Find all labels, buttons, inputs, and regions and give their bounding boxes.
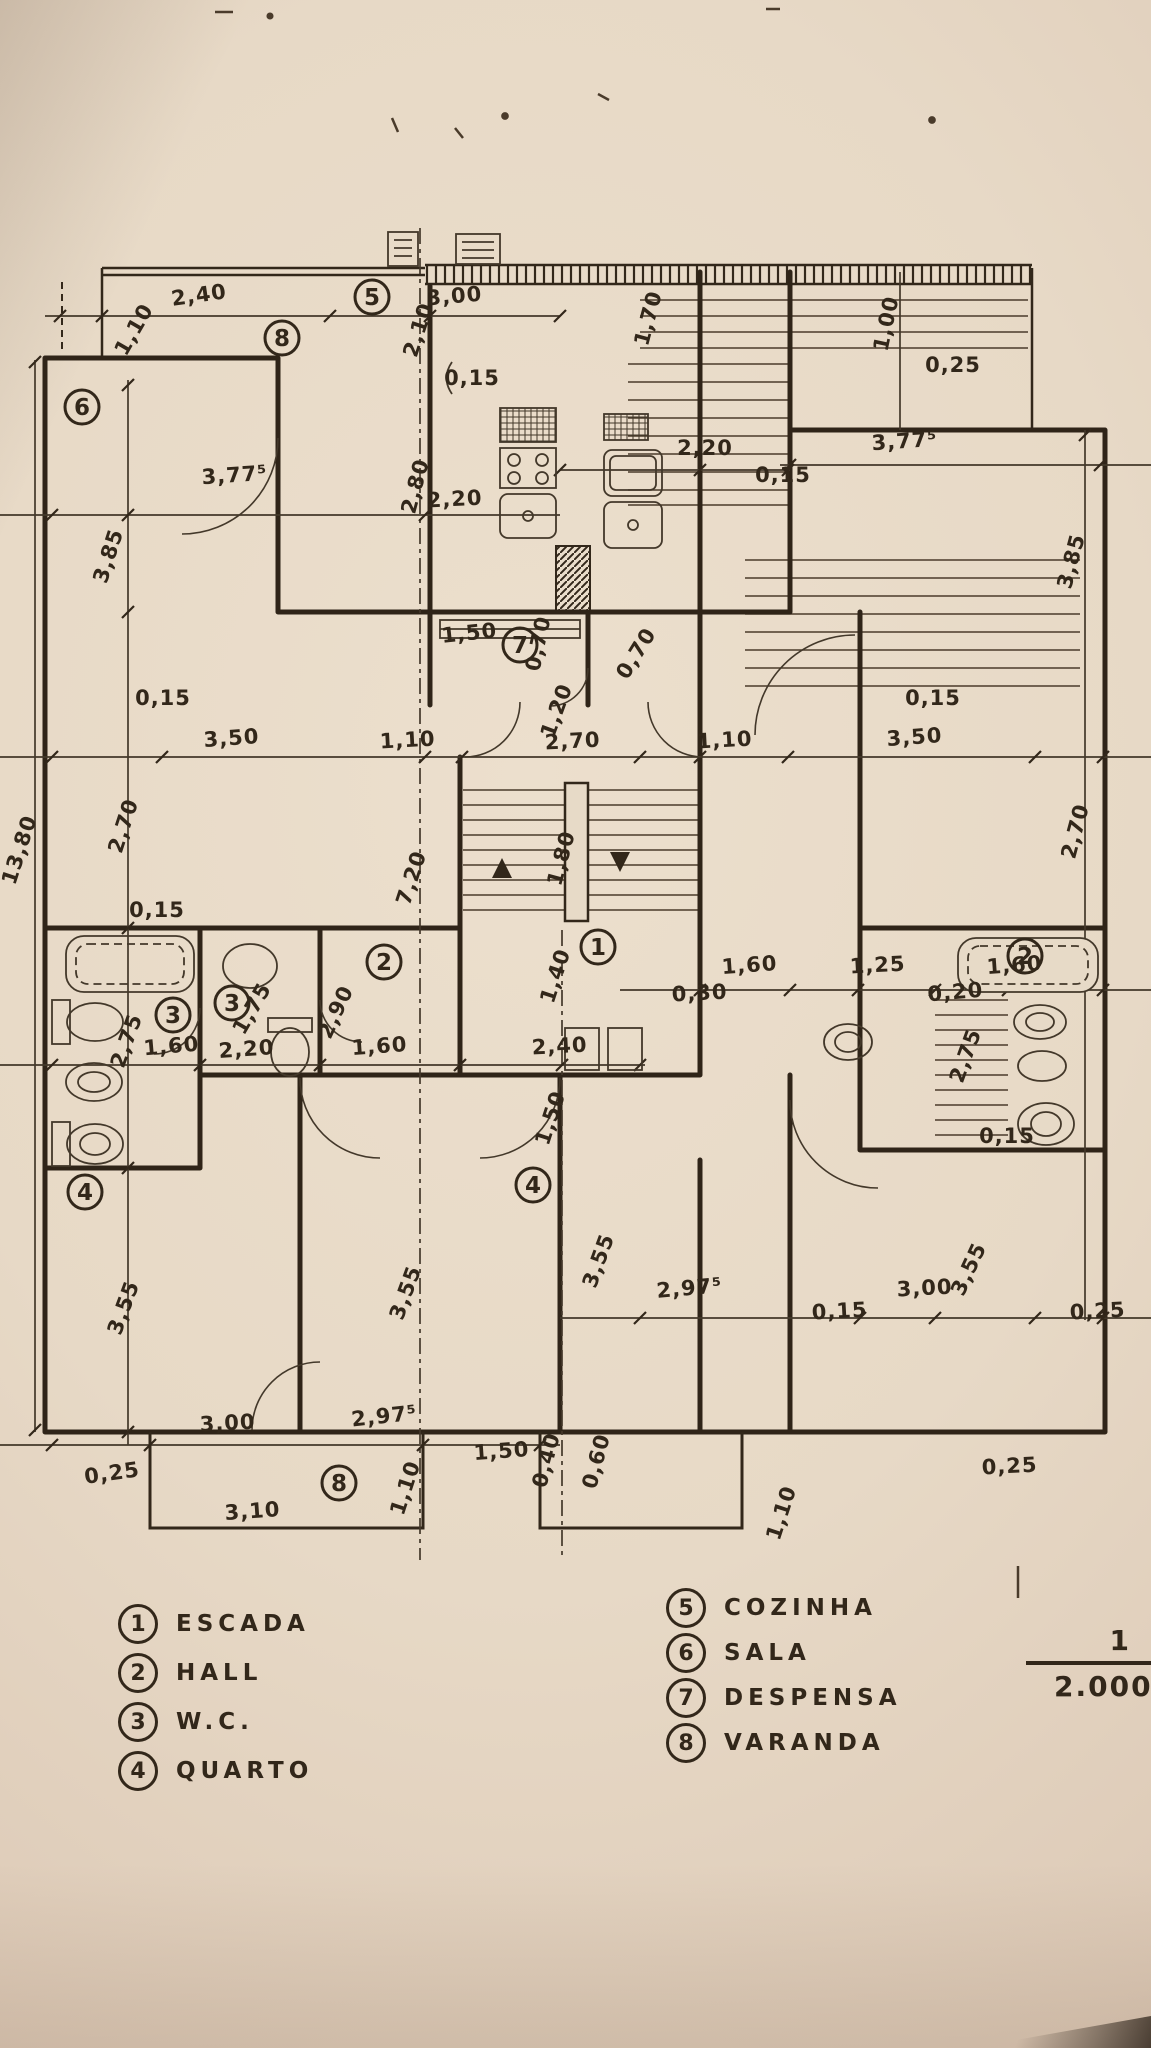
dimension-label: 0,25 — [1069, 1298, 1126, 1325]
dimension-label: 3,00 — [199, 1410, 256, 1437]
room-marker: 1 — [581, 930, 615, 964]
dimension-label: 1,00 — [869, 294, 904, 354]
scale-denominator: 2.000 — [1026, 1670, 1151, 1703]
dimension-label: 1,50 — [473, 1437, 530, 1465]
hatched-column — [556, 546, 590, 612]
legend-number: 3 — [118, 1702, 158, 1742]
dimension-label: 2,20 — [426, 486, 483, 513]
legend-number: 5 — [666, 1588, 706, 1628]
dimension-label: 1,25 — [849, 952, 906, 979]
washbasin-left — [223, 944, 277, 988]
legend-label: QUARTO — [176, 1758, 313, 1784]
dimension-label: 2,70 — [103, 796, 143, 857]
dimension-label: 2,97⁵ — [655, 1273, 723, 1303]
dimension-label: 3,77⁵ — [871, 427, 939, 456]
legend-label: COZINHA — [724, 1595, 877, 1621]
dimension-label: 1,60 — [721, 951, 778, 979]
svg-text:5: 5 — [364, 285, 380, 311]
legend-label: HALL — [176, 1660, 262, 1686]
stair-up-arrow-icon — [492, 858, 512, 878]
dimension-label: 1,50 — [530, 1088, 570, 1149]
legend-label: DESPENSA — [724, 1685, 902, 1711]
svg-text:2: 2 — [1017, 944, 1033, 970]
svg-text:8: 8 — [331, 1471, 347, 1497]
legend-item-escada: 1 ESCADA — [118, 1604, 313, 1644]
dimension-label: 1,10 — [761, 1483, 801, 1544]
svg-text:7: 7 — [512, 633, 528, 659]
floor-plan-photo: 2,401,103,002,100,151,701,000,252,203,77… — [0, 0, 1151, 2048]
dimension-label: 1,60 — [351, 1032, 408, 1060]
dimension-label: 1,40 — [535, 946, 575, 1007]
dimension-label: 0,25 — [981, 1453, 1038, 1480]
dimension-label: 0,15 — [129, 898, 185, 922]
svg-text:1: 1 — [590, 935, 606, 961]
legend-number: 4 — [118, 1751, 158, 1791]
bidet-left — [66, 1063, 122, 1101]
dimension-label: 1,60 — [143, 1032, 201, 1061]
dimension-label: 0,25 — [83, 1457, 142, 1489]
dimension-label: 0,70 — [611, 623, 661, 683]
dimension-label: 3,85 — [88, 526, 128, 587]
dimension-label: 2,20 — [218, 1035, 275, 1063]
kitchen-counter-grid — [500, 408, 556, 442]
dimension-label: 7,20 — [391, 848, 431, 909]
dimension-label: 2,75 — [106, 1010, 148, 1071]
dimension-label: 1,10 — [696, 727, 753, 754]
stair-down-arrow-icon — [610, 852, 630, 872]
dimension-label: 0,15 — [811, 1298, 868, 1325]
dimension-label: 2,70 — [1056, 801, 1094, 861]
legend-label: W.C. — [176, 1709, 254, 1735]
svg-text:8: 8 — [274, 326, 290, 352]
dimension-label: 1,10 — [379, 727, 436, 754]
dimension-label: 2,70 — [544, 728, 601, 755]
legend-number: 7 — [666, 1678, 706, 1718]
dimension-label: 2,97⁵ — [350, 1401, 418, 1432]
photo-artifacts — [215, 9, 1018, 1598]
svg-text:3: 3 — [224, 991, 240, 1017]
legend-number: 8 — [666, 1723, 706, 1763]
legend-number: 6 — [666, 1633, 706, 1673]
legend-item-wc: 3 W.C. — [118, 1702, 313, 1742]
toilet-mid — [271, 1028, 309, 1076]
legend-item-varanda: 8 VARANDA — [666, 1723, 902, 1763]
kitchen-sink — [500, 494, 556, 538]
legend-number: 2 — [118, 1653, 158, 1693]
legend-left: 1 ESCADA 2 HALL 3 W.C. 4 QUARTO — [118, 1604, 313, 1800]
room-marker: 5 — [355, 280, 389, 314]
dimension-label: 3,50 — [886, 723, 943, 751]
dimension-label: 3,55 — [946, 1239, 991, 1300]
door-arcs — [154, 438, 878, 1430]
room-marker: 4 — [516, 1168, 550, 1202]
dimension-label: 0,15 — [979, 1124, 1035, 1148]
dimension-label: 0,40 — [527, 1430, 565, 1490]
dimension-label: 0,20 — [927, 978, 985, 1007]
toilet-left-2 — [67, 1124, 123, 1164]
fraction-bar — [1026, 1661, 1151, 1665]
dimension-label: 0,15 — [135, 686, 191, 710]
legend-item-hall: 2 HALL — [118, 1653, 313, 1693]
dimension-label: 1,60 — [986, 951, 1043, 979]
dimension-label: 0,15 — [444, 366, 500, 390]
svg-text:2: 2 — [376, 950, 392, 976]
svg-text:4: 4 — [77, 1180, 93, 1206]
legend-item-sala: 6 SALA — [666, 1633, 902, 1673]
svg-text:3: 3 — [165, 1003, 181, 1029]
kitchen-sink-2 — [604, 502, 662, 548]
svg-text:4: 4 — [525, 1173, 541, 1199]
dimension-label: 3,55 — [103, 1277, 145, 1338]
legend-label: ESCADA — [176, 1611, 310, 1637]
legend-number: 1 — [118, 1604, 158, 1644]
legend-item-quarto: 4 QUARTO — [118, 1751, 313, 1791]
room-marker: 8 — [322, 1466, 356, 1500]
legend-right: 5 COZINHA 6 SALA 7 DESPENSA 8 VARANDA — [666, 1588, 902, 1768]
room-marker: 4 — [68, 1175, 102, 1209]
room-marker: 6 — [65, 390, 99, 424]
dimension-label: 0,15 — [755, 463, 811, 487]
legend-label: VARANDA — [724, 1730, 885, 1756]
dimension-label: 2,40 — [170, 279, 229, 311]
dimension-label: 0,15 — [905, 686, 961, 710]
svg-text:6: 6 — [74, 395, 90, 421]
dimension-label: 3,10 — [224, 1497, 281, 1525]
dimension-label: 2,20 — [677, 436, 733, 460]
dimension-label: 2,75 — [945, 1025, 987, 1086]
bidet-right — [1018, 1051, 1066, 1081]
dimension-label: 3,00 — [896, 1275, 953, 1302]
dimension-label: 0,30 — [671, 980, 728, 1007]
dimension-label: 1,50 — [440, 618, 498, 648]
legend-item-cozinha: 5 COZINHA — [666, 1588, 902, 1628]
dimension-label: 3,50 — [203, 724, 260, 752]
dimension-label: 1,10 — [110, 299, 159, 359]
legend-label: SALA — [724, 1640, 811, 1666]
bidet-hall-right — [824, 1024, 872, 1060]
room-marker: 2 — [367, 945, 401, 979]
legend-item-despensa: 7 DESPENSA — [666, 1678, 902, 1718]
dimension-label: 3,77⁵ — [201, 461, 269, 490]
dimension-label: 2,40 — [531, 1033, 588, 1060]
drawing-scale: 1 2.000 — [1026, 1624, 1151, 1703]
scale-numerator: 1 — [1026, 1624, 1151, 1657]
dimension-label: 0,60 — [577, 1431, 615, 1491]
room-marker: 8 — [265, 321, 299, 355]
dimension-label: 0,25 — [925, 353, 981, 377]
dimension-label: 3,55 — [578, 1230, 620, 1291]
dimension-label: 1,70 — [629, 288, 667, 348]
room-marker: 3 — [156, 998, 190, 1032]
toilet-right — [1014, 1005, 1066, 1039]
